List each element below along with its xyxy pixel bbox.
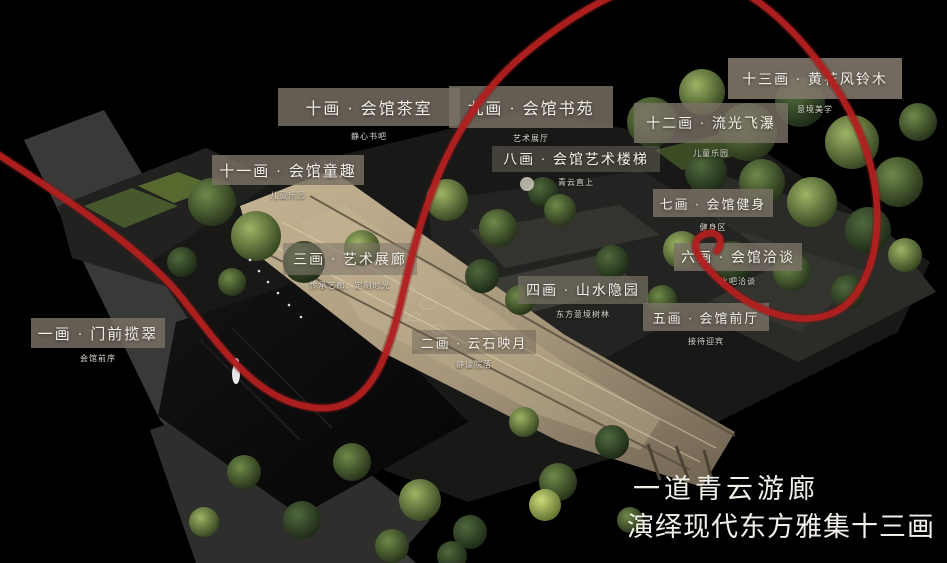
callout-subtitle: 儿童乐园 [634,148,788,159]
callout-subtitle: 健身区 [653,222,773,233]
callout-subtitle: 静谧院落 [412,359,536,370]
callout-subtitle: 青云直上 [492,177,660,188]
callout-subtitle: 儿童乐园 [212,190,364,201]
callout-subtitle: 东方意境树林 [518,309,648,320]
callout-subtitle: 接待迎宾 [643,336,769,347]
callout-subtitle: 静心书吧 [278,131,460,142]
label-callout-13: 十三画 · 黄花风铃木意境美学 [728,58,902,115]
callout-subtitle: 水吧洽谈 [674,276,802,287]
label-callout-7: 七画 · 会馆健身健身区 [653,189,773,233]
caption-line-1: 一道青云游廊 [633,467,819,506]
label-callout-2: 二画 · 云石映月静谧院落 [412,330,536,370]
callout-subtitle: 意境美学 [728,104,902,115]
label-callout-10: 十画 · 会馆茶室静心书吧 [278,88,460,142]
label-callout-6: 六画 · 会馆洽谈水吧洽谈 [674,243,802,287]
caption-line-2: 演绎现代东方雅集十三画 [627,505,935,544]
label-callout-5: 五画 · 会馆前厅接待迎宾 [643,303,769,347]
callout-title: 九画 · 会馆书苑 [449,86,613,128]
label-callout-3: 三画 · 艺术展廊传承艺廊、定制时光 [283,243,417,291]
white-sculpture [232,364,240,384]
callout-title: 二画 · 云石映月 [412,330,536,354]
callout-title: 十画 · 会馆茶室 [278,88,460,126]
callout-title: 六画 · 会馆洽谈 [674,243,802,271]
label-callout-9: 九画 · 会馆书苑艺术展厅 [449,86,613,144]
masterplan-page: 一画 · 门前揽翠会馆前序 二画 · 云石映月静谧院落 三画 · 艺术展廊传承艺… [0,0,947,563]
callout-subtitle: 传承艺廊、定制时光 [283,280,417,291]
label-callout-4: 四画 · 山水隐园东方意境树林 [518,276,648,320]
callout-title: 十三画 · 黄花风铃木 [728,58,902,99]
callout-title: 四画 · 山水隐园 [518,276,648,304]
label-callout-1: 一画 · 门前揽翠会馆前序 [31,318,165,364]
label-callout-11: 十一画 · 会馆童趣儿童乐园 [212,155,364,201]
callout-title: 十一画 · 会馆童趣 [212,155,364,185]
callout-subtitle: 艺术展厅 [449,133,613,144]
callout-subtitle: 会馆前序 [31,353,165,364]
callout-title: 一画 · 门前揽翠 [31,318,165,348]
callout-title: 七画 · 会馆健身 [653,189,773,217]
callout-title: 五画 · 会馆前厅 [643,303,769,331]
callout-title: 三画 · 艺术展廊 [283,243,417,275]
